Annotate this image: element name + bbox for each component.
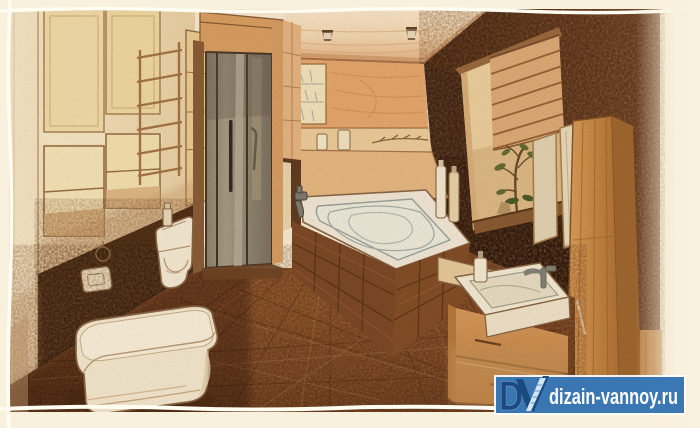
svg-text:dizain-vannoy.ru: dizain-vannoy.ru [549,384,678,409]
